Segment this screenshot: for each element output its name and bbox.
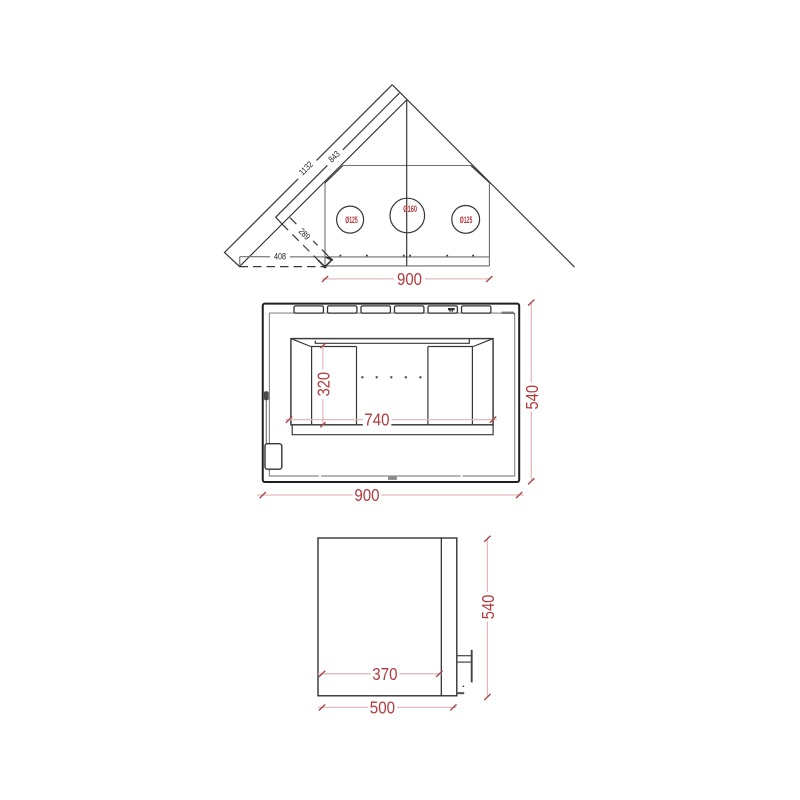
svg-text:540: 540 xyxy=(478,595,498,620)
svg-text:320: 320 xyxy=(314,372,334,397)
svg-text:Ø125: Ø125 xyxy=(460,215,473,225)
svg-text:Ø125: Ø125 xyxy=(345,215,358,225)
svg-text:740: 740 xyxy=(364,410,389,430)
svg-text:Ø160: Ø160 xyxy=(403,204,417,214)
svg-text:540: 540 xyxy=(522,385,542,410)
svg-text:900: 900 xyxy=(354,485,379,505)
svg-text:408: 408 xyxy=(274,252,286,262)
svg-text:370: 370 xyxy=(372,664,397,684)
svg-text:500: 500 xyxy=(370,698,395,718)
svg-text:900: 900 xyxy=(397,269,422,289)
